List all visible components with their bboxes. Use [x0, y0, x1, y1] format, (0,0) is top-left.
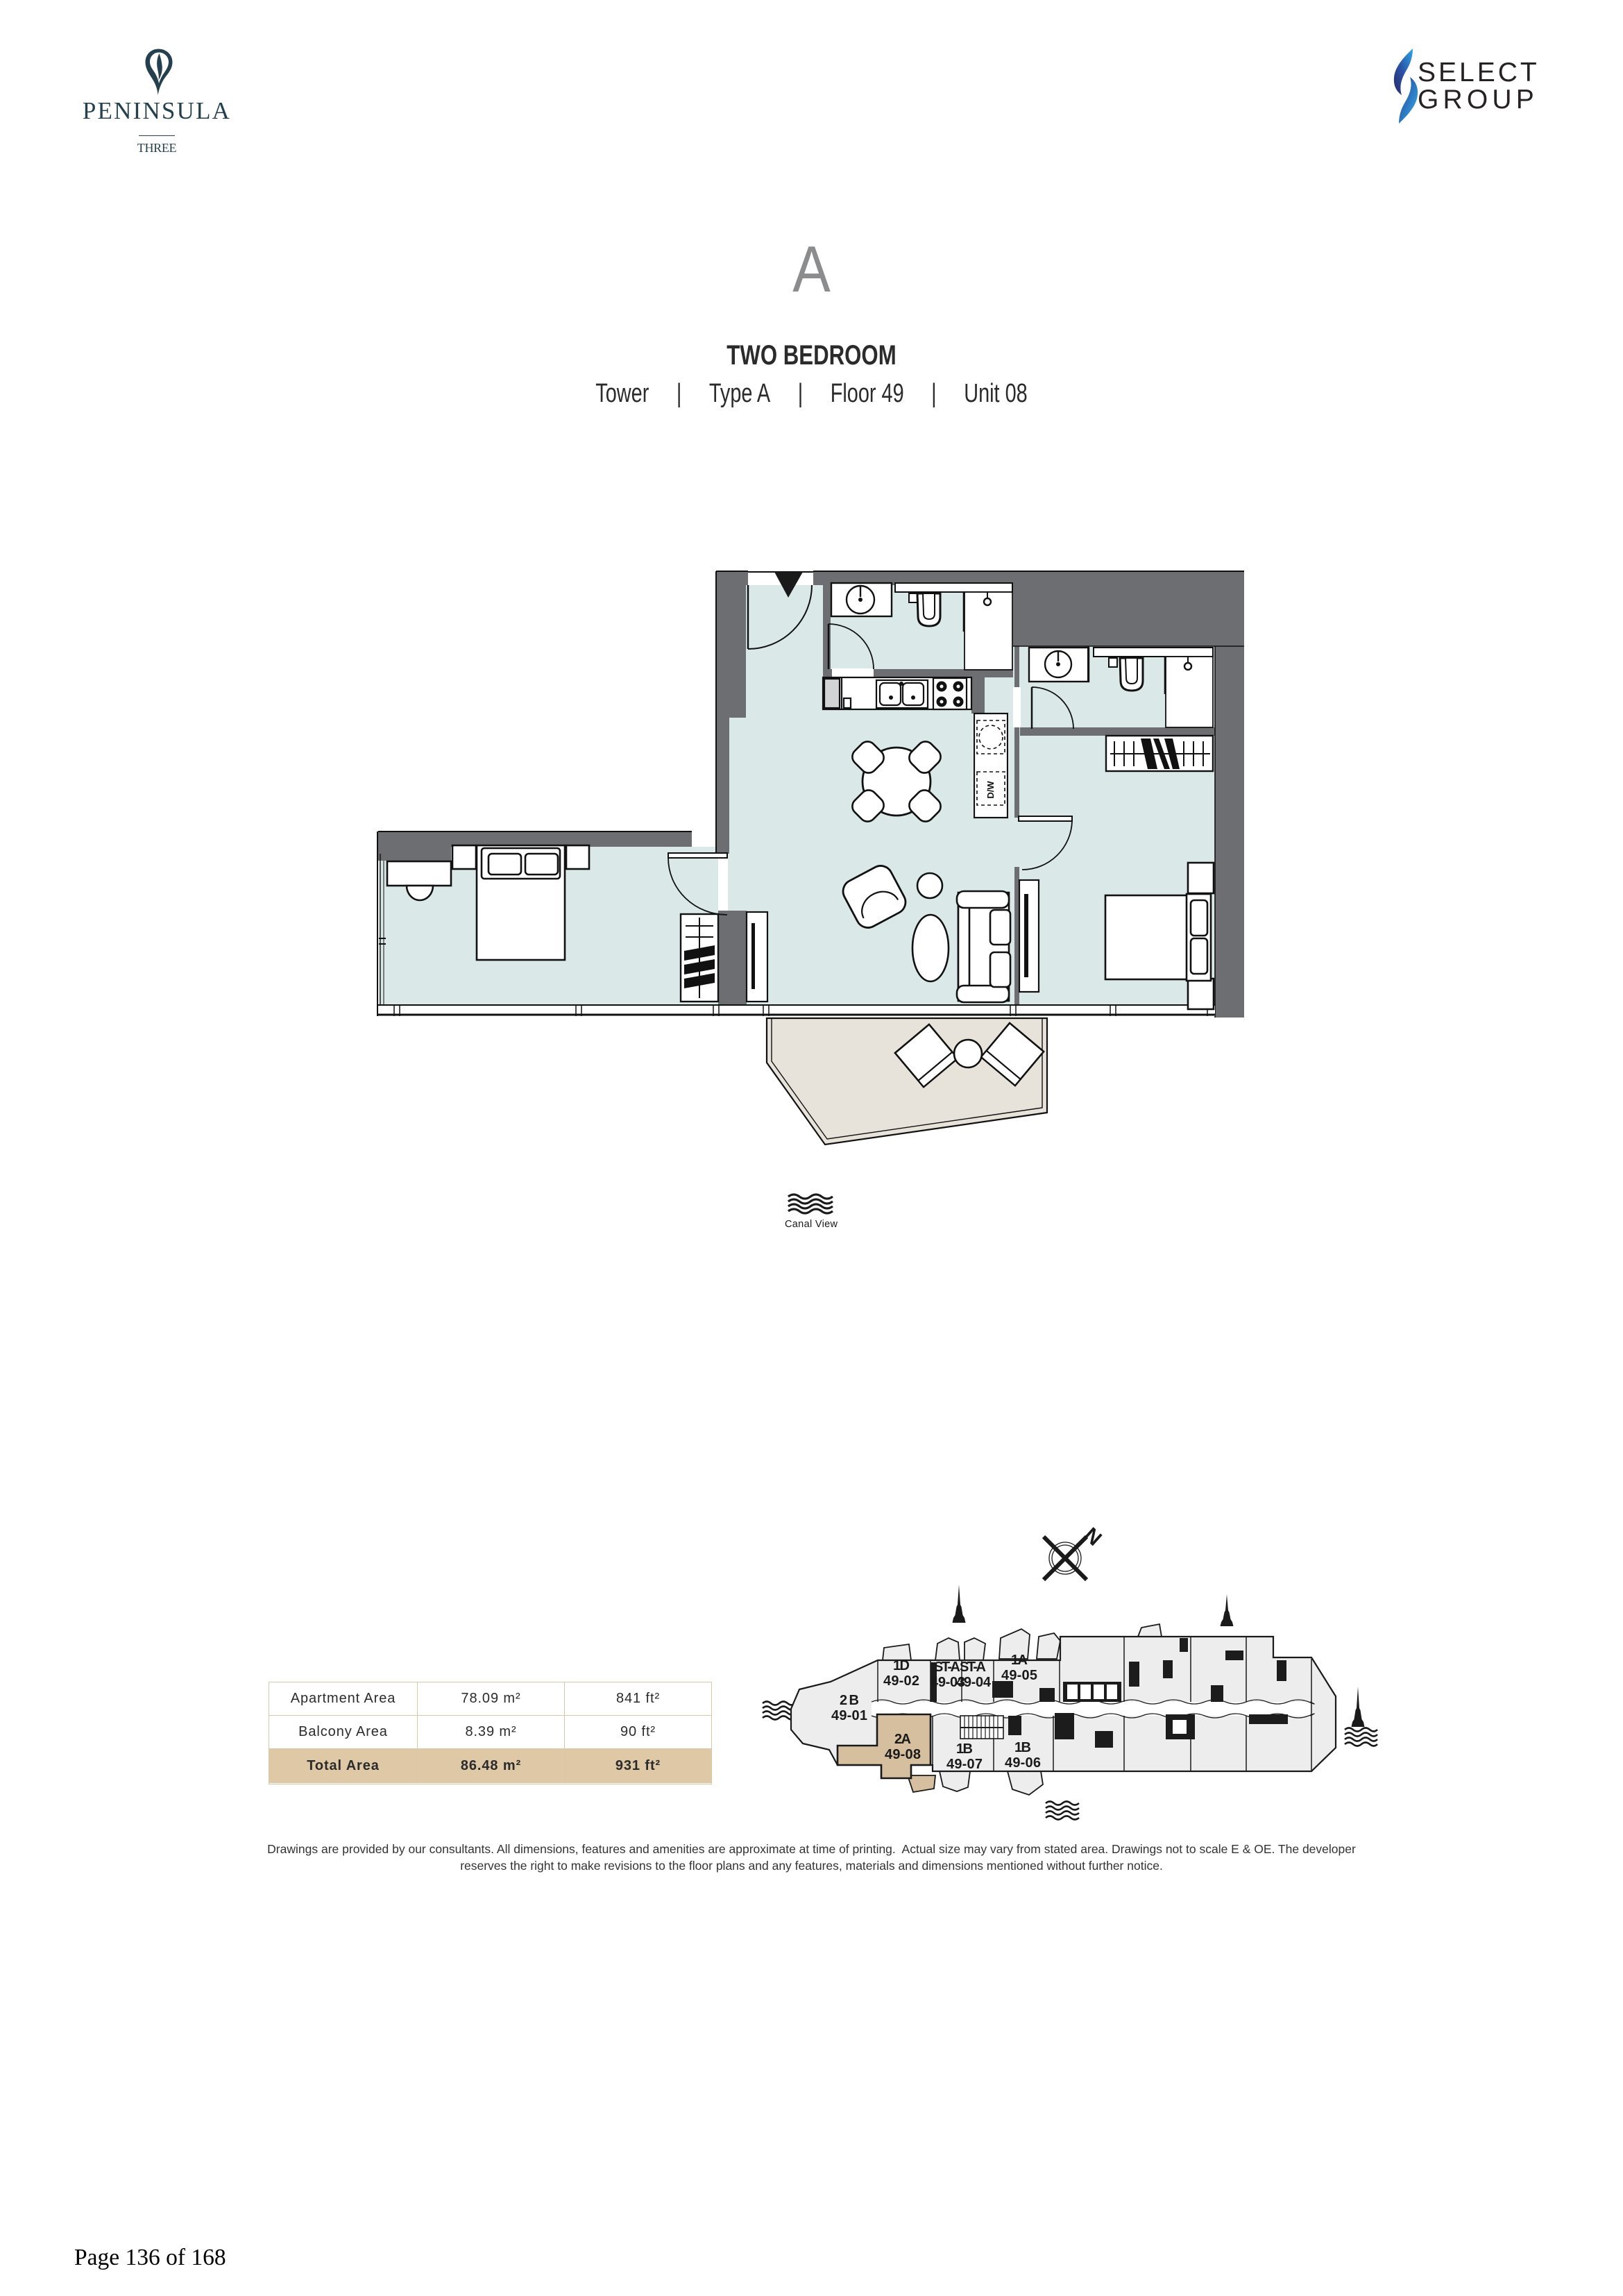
- svg-text:49-08: 49-08: [885, 1747, 921, 1762]
- svg-text:49-06: 49-06: [1005, 1755, 1041, 1771]
- svg-text:Canal View: Canal View: [785, 1219, 838, 1230]
- svg-text:49-07: 49-07: [946, 1757, 983, 1772]
- svg-text:2A: 2A: [894, 1732, 911, 1747]
- svg-text:ST-A: ST-A: [960, 1660, 986, 1675]
- svg-text:D/W: D/W: [985, 781, 996, 799]
- svg-text:N: N: [1080, 1523, 1106, 1551]
- svg-text:2B: 2B: [840, 1693, 859, 1708]
- svg-text:49-05: 49-05: [1001, 1668, 1037, 1683]
- svg-text:1D: 1D: [893, 1658, 910, 1673]
- svg-text:1A: 1A: [1011, 1653, 1028, 1668]
- svg-text:49-01: 49-01: [831, 1708, 867, 1723]
- svg-text:49-02: 49-02: [883, 1673, 919, 1689]
- svg-text:49-04: 49-04: [956, 1675, 992, 1690]
- svg-text:1B: 1B: [956, 1741, 973, 1757]
- svg-text:1B: 1B: [1014, 1740, 1031, 1755]
- svg-text:ST-A: ST-A: [934, 1660, 960, 1675]
